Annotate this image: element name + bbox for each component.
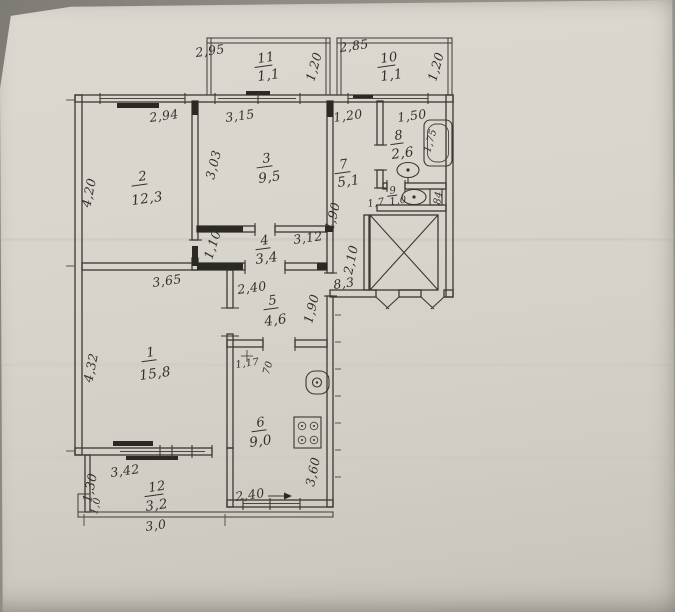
- dim-corridor5-depth: 1,90: [300, 293, 322, 325]
- scanned-floor-plan-photo: 2 12,3 3 9,5 7 5,1 8 2,6 9 1,0 4 3,4 5 4…: [0, 0, 675, 612]
- dim-kitchen-door-width: 70: [261, 360, 275, 376]
- dim-kitchen-window-width: 2,40: [233, 485, 265, 504]
- dim-loggia-step: 1,0: [89, 496, 103, 515]
- dim-stairs-area: 8,3: [332, 274, 355, 292]
- room-5-number: 5: [267, 293, 278, 309]
- room-5-area: 4,6: [262, 311, 288, 330]
- room-7-number: 7: [338, 157, 349, 173]
- room-10-area: 1,1: [379, 66, 404, 85]
- dim-loggia-width: 3,42: [109, 461, 140, 480]
- dimension-ticks: [66, 100, 341, 526]
- dim-shaft-depth: 2,10: [340, 244, 361, 277]
- room-11-number: 11: [256, 50, 275, 67]
- dim-room1-width: 3,65: [151, 271, 182, 290]
- dim-room3-depth: 3,03: [202, 149, 224, 181]
- room-4-number: 4: [258, 233, 270, 249]
- dim-kitchen-door-offset: 1,17: [235, 357, 260, 371]
- room-10-number: 10: [379, 50, 398, 67]
- door-openings: [189, 145, 444, 351]
- dim-wc-door: 1,7: [367, 197, 386, 210]
- room-4-area: 3,4: [254, 249, 279, 268]
- dim-bath-width: 1,50: [396, 106, 427, 125]
- dim-hall-depth: 4,90: [321, 201, 343, 234]
- room-7-area: 5,1: [336, 172, 361, 191]
- room-9-area: 1,0: [389, 195, 408, 208]
- elevator-shaft: [370, 215, 438, 290]
- dim-room3-width: 3,15: [224, 106, 255, 125]
- room-2-area: 12,3: [130, 189, 164, 209]
- dim-balcony10-width: 2,85: [337, 36, 369, 55]
- dim-corridor5-width: 2,40: [235, 278, 267, 297]
- room-1-area: 15,8: [138, 364, 172, 384]
- dim-balcony11-width: 2,95: [193, 41, 225, 60]
- room-12-area: 3,2: [144, 496, 169, 515]
- room-8-number: 8: [393, 128, 404, 144]
- dim-room2-depth: 4,20: [78, 177, 99, 210]
- dim-room2-width: 2,94: [147, 106, 179, 125]
- room-3-number: 3: [261, 151, 272, 167]
- room-1-number: 1: [145, 345, 156, 361]
- dim-bathtub-length: 1,75: [422, 128, 439, 154]
- dim-balcony11-depth: 1,20: [302, 50, 325, 82]
- room-11-area: 1,1: [256, 66, 281, 85]
- balcony-walls: [207, 38, 452, 95]
- washbasin-icon: [397, 163, 419, 184]
- dim-balcony10-depth: 1,20: [424, 50, 447, 82]
- dim-wc-width: 84: [432, 190, 445, 205]
- room-3-area: 9,5: [257, 168, 282, 187]
- floor-plan-drawing: 2 12,3 3 9,5 7 5,1 8 2,6 9 1,0 4 3,4 5 4…: [0, 0, 675, 612]
- stove-icon: [294, 417, 321, 448]
- dim-room1-depth: 4,32: [80, 352, 101, 385]
- dim-corridor4-depth: 1,10: [201, 228, 224, 261]
- dim-corridor4-width: 3,12: [292, 228, 323, 247]
- room-12-number: 12: [147, 479, 166, 496]
- room-8-area: 2,6: [389, 144, 415, 163]
- room-6-number: 6: [255, 415, 266, 431]
- room-6-area: 9,0: [248, 432, 273, 451]
- room-2-number: 2: [136, 169, 148, 185]
- dim-kitchen-depth: 3,60: [302, 456, 323, 488]
- dim-hall-width: 1,20: [332, 106, 363, 125]
- kitchen-sink-icon: [306, 371, 329, 394]
- dim-loggia-outer-width: 3,0: [144, 516, 167, 534]
